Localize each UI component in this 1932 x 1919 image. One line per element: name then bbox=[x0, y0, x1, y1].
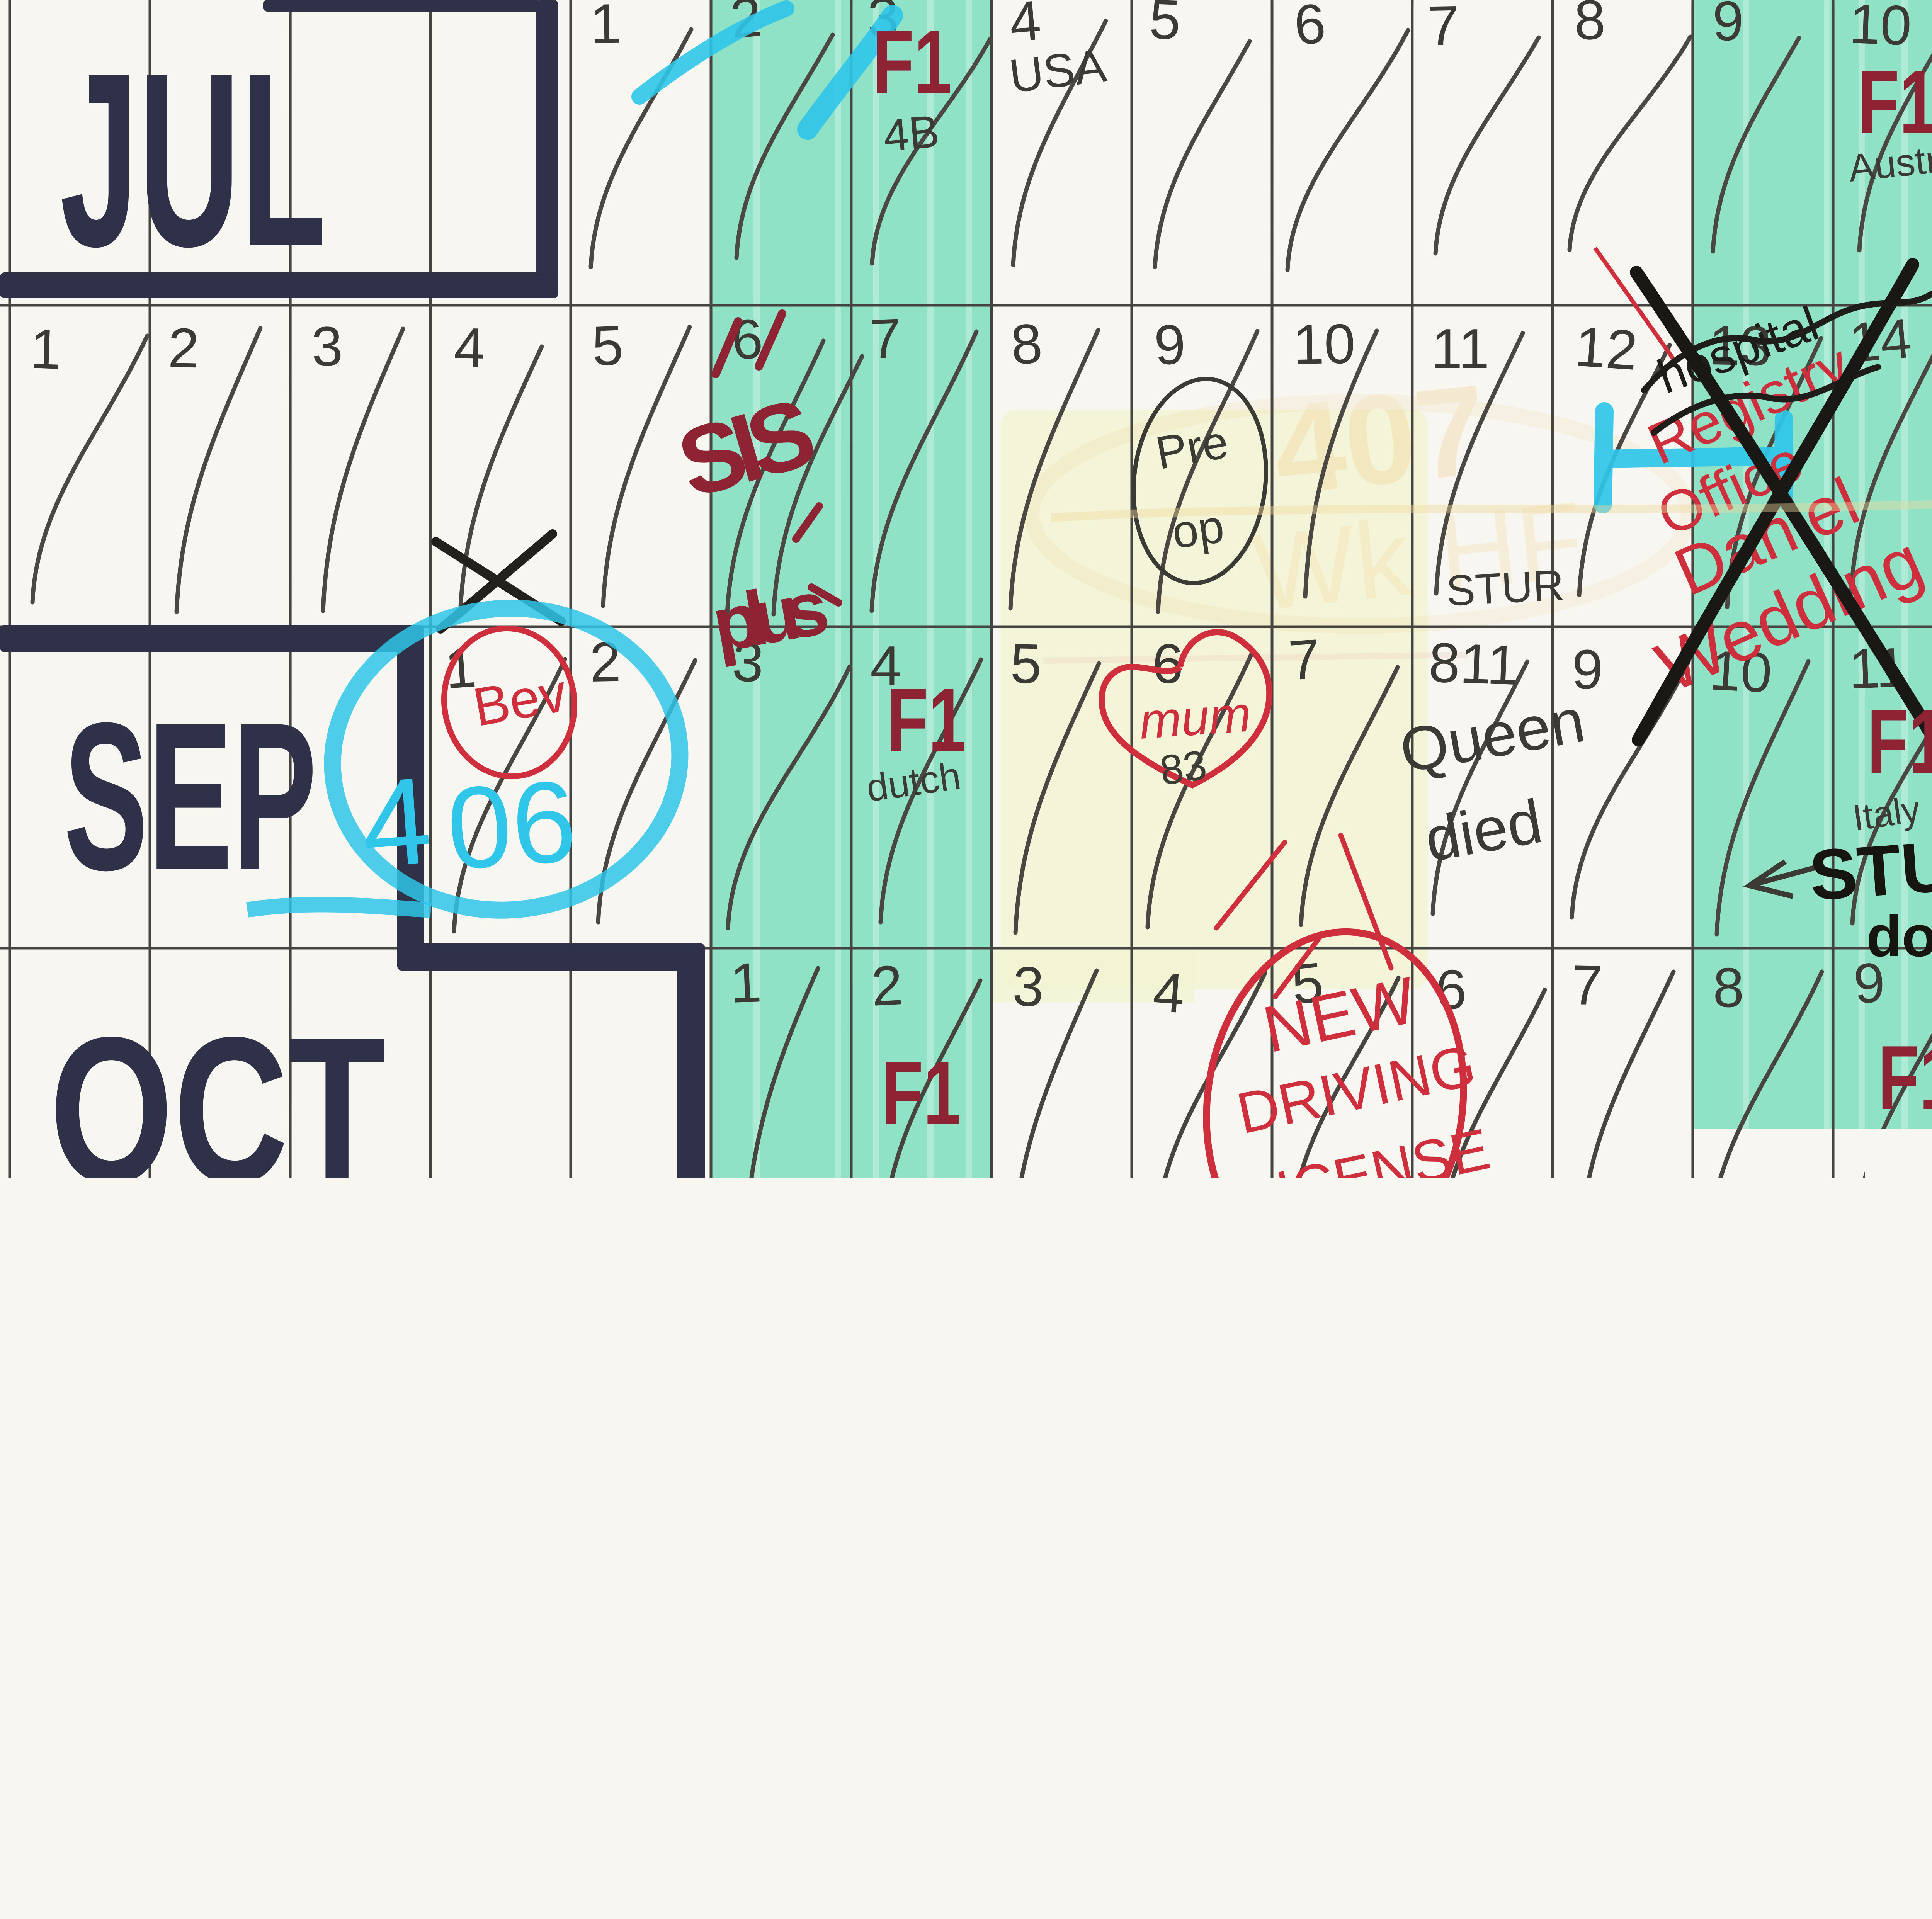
svg-text:JUL: JUL bbox=[60, 22, 327, 298]
svg-text:1: 1 bbox=[448, 1594, 482, 1659]
svg-text:5: 5 bbox=[654, 1781, 680, 1833]
svg-text:7: 7 bbox=[1287, 627, 1322, 692]
svg-text:8: 8 bbox=[1432, 1596, 1463, 1658]
svg-text:3: 3 bbox=[1012, 955, 1045, 1018]
svg-text:N: N bbox=[22, 1317, 170, 1546]
svg-text:F1: F1 bbox=[1867, 690, 1932, 792]
svg-text:06: 06 bbox=[443, 755, 580, 894]
svg-text:5: 5 bbox=[1148, 0, 1182, 51]
svg-text:Jap: Jap bbox=[1857, 1192, 1921, 1241]
svg-text:10: 10 bbox=[1848, 0, 1913, 57]
svg-text:mum: mum bbox=[1138, 685, 1253, 750]
svg-text:83: 83 bbox=[1157, 741, 1209, 794]
svg-text:6: 6 bbox=[1292, 0, 1328, 57]
svg-text:12: 12 bbox=[1573, 315, 1639, 382]
svg-text:9: 9 bbox=[1153, 313, 1187, 377]
svg-text:10.30: 10.30 bbox=[1694, 1426, 1859, 1500]
svg-text:F1: F1 bbox=[1858, 51, 1932, 153]
svg-text:STUR: STUR bbox=[1445, 561, 1565, 615]
svg-text:6: 6 bbox=[1151, 1592, 1185, 1656]
svg-text:F1: F1 bbox=[1878, 1027, 1932, 1128]
svg-text:4: 4 bbox=[1151, 960, 1187, 1025]
svg-text:8: 8 bbox=[1009, 312, 1044, 376]
svg-text:11: 11 bbox=[1431, 317, 1490, 380]
svg-text:8: 8 bbox=[1713, 956, 1744, 1019]
svg-text:7: 7 bbox=[869, 307, 902, 371]
svg-text:do.: do. bbox=[1866, 904, 1932, 969]
svg-text:2: 2 bbox=[308, 1279, 342, 1343]
svg-text:9: 9 bbox=[1713, 0, 1744, 52]
svg-text:4: 4 bbox=[357, 751, 436, 894]
svg-text:2: 2 bbox=[870, 954, 904, 1018]
svg-text:1: 1 bbox=[729, 951, 762, 1015]
svg-text:9: 9 bbox=[1284, 1278, 1320, 1343]
svg-text:5: 5 bbox=[1010, 632, 1042, 695]
svg-text:2: 2 bbox=[167, 316, 199, 379]
svg-text:7: 7 bbox=[1289, 1590, 1327, 1656]
svg-text:brekky: brekky bbox=[677, 1668, 869, 1822]
svg-text:3: 3 bbox=[310, 314, 344, 378]
svg-text:3: 3 bbox=[728, 1593, 761, 1657]
svg-text:5: 5 bbox=[591, 314, 624, 377]
svg-text:13: 13 bbox=[1849, 1275, 1912, 1339]
svg-text:F1: F1 bbox=[882, 1042, 961, 1144]
svg-text:12: 12 bbox=[1709, 1274, 1772, 1338]
svg-text:811: 811 bbox=[1428, 631, 1519, 697]
svg-text:4: 4 bbox=[1007, 0, 1043, 54]
svg-text:7: 7 bbox=[1571, 954, 1603, 1016]
svg-text:Braz: Braz bbox=[1854, 1470, 1932, 1519]
svg-text:SEP: SEP bbox=[64, 679, 317, 914]
svg-text:6: 6 bbox=[869, 1278, 905, 1343]
svg-text:F1: F1 bbox=[1875, 1351, 1932, 1450]
svg-text:DEC: DEC bbox=[49, 1659, 281, 1849]
svg-text:9: 9 bbox=[1576, 1597, 1609, 1661]
svg-text:F1: F1 bbox=[872, 11, 952, 113]
svg-text:11: 11 bbox=[1573, 1275, 1634, 1339]
svg-text:Paul: Paul bbox=[1122, 1344, 1300, 1447]
svg-text:11: 11 bbox=[1849, 1591, 1908, 1655]
svg-text:STUR: STUR bbox=[1807, 823, 1932, 916]
svg-text:4: 4 bbox=[453, 316, 485, 379]
svg-text:10: 10 bbox=[1708, 1596, 1773, 1661]
svg-text:OCT: OCT bbox=[49, 994, 386, 1227]
svg-text:10: 10 bbox=[1293, 312, 1356, 376]
svg-text:1: 1 bbox=[590, 0, 622, 55]
svg-text:garage: garage bbox=[1105, 1448, 1361, 1543]
svg-text:7: 7 bbox=[1427, 0, 1459, 57]
svg-text:4B: 4B bbox=[881, 106, 941, 161]
svg-text:8: 8 bbox=[1574, 0, 1606, 51]
svg-text:1: 1 bbox=[29, 317, 62, 381]
